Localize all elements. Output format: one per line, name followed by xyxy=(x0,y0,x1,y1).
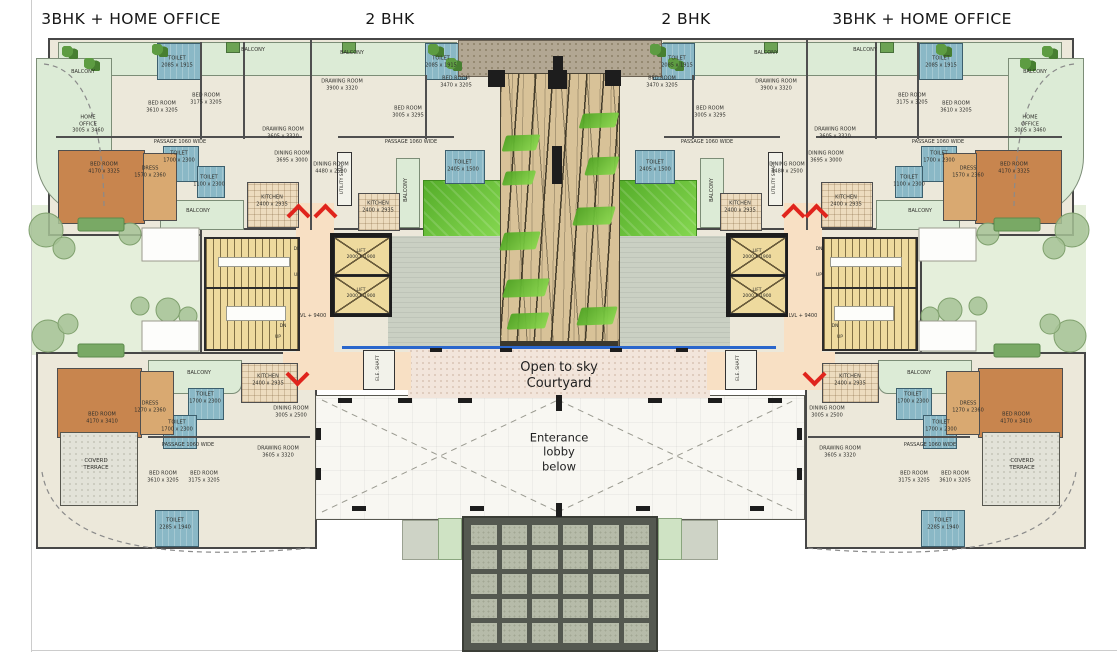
room-label: DN xyxy=(816,247,823,253)
room-label: TOILET 2285 x 1940 xyxy=(159,518,191,531)
deck-grass-patch xyxy=(501,134,540,151)
paving-right xyxy=(618,236,730,348)
courtyard-label: Open to sky Courtyard xyxy=(520,360,598,393)
canopy-tile xyxy=(563,550,589,570)
courtyard-lawn-right xyxy=(618,180,697,240)
stair-right-lower-landing xyxy=(834,306,894,321)
room-label: PASSAGE 1060 WIDE xyxy=(385,139,437,146)
room-label: BED ROOM 4170 x 3325 xyxy=(88,162,120,175)
room-label: KITCHEN 2400 x 2935 xyxy=(834,374,866,387)
room-label: BALCONY xyxy=(907,370,931,377)
room-label: BED ROOM 3175 x 3205 xyxy=(190,93,222,106)
room-label: BALCONY xyxy=(853,47,877,54)
room-label: COVERD TERRACE xyxy=(83,458,108,472)
paving-left xyxy=(388,236,500,348)
canopy-tile xyxy=(563,623,589,643)
room-label: BED ROOM 3470 x 3205 xyxy=(646,76,678,89)
room-label: TOILET 2085 x 1915 xyxy=(661,56,693,69)
floor-plan-canvas: 3BHK + HOME OFFICE 2 BHK 2 BHK 3BHK + HO… xyxy=(0,0,1118,658)
room-label: HOME OFFICE 3005 x 3460 xyxy=(1014,114,1046,134)
room-label: KITCHEN 2400 x 2935 xyxy=(256,195,288,208)
room-label: DRAWING ROOM 3900 x 3320 xyxy=(755,79,797,92)
room-label: LIFT 2000 X 1900 xyxy=(743,249,772,261)
deck-grass-patch xyxy=(579,112,620,128)
room-label: HOME OFFICE 3005 x 3460 xyxy=(72,114,104,134)
room-label: DRESS 1270 x 2360 xyxy=(134,401,166,414)
canopy-tile xyxy=(502,623,528,643)
room-label: DRESS 1270 x 2360 xyxy=(952,401,984,414)
room-label: PASSAGE 1060 WIDE xyxy=(154,139,206,146)
entrance-green-right xyxy=(658,518,682,560)
unit-type-label-left: 3BHK + HOME OFFICE xyxy=(41,10,221,28)
room-label: ELE. SHAFT xyxy=(736,355,742,381)
room-label: TOILET 1100 x 2300 xyxy=(893,175,925,188)
canopy-tile xyxy=(593,525,619,545)
deck-grass-patch xyxy=(576,306,618,325)
wall-line xyxy=(338,136,454,138)
canopy-tile xyxy=(471,574,497,594)
room-label: BED ROOM 3610 x 3205 xyxy=(146,101,178,114)
room-label: LVL + 9400 xyxy=(298,313,327,320)
plant-icon xyxy=(62,46,78,59)
room-label: TOILET 2085 x 1915 xyxy=(925,56,957,69)
entrance-tile-canopy xyxy=(462,516,658,652)
room-label: BED ROOM 3005 x 3295 xyxy=(694,106,726,119)
wall-line xyxy=(875,42,877,139)
unit-type-label-2bhk-right: 2 BHK xyxy=(661,10,710,28)
room-label: TOILET 1700 x 2300 xyxy=(189,392,221,405)
room-label: BED ROOM 3610 x 3205 xyxy=(939,471,971,484)
canopy-tile xyxy=(563,525,589,545)
planter-box xyxy=(880,42,894,53)
room-label: BALCONY xyxy=(754,50,778,57)
canopy-tile xyxy=(471,525,497,545)
room-label: BED ROOM 4170 x 3325 xyxy=(998,162,1030,175)
wall-line xyxy=(243,42,245,139)
room-label: BED ROOM 3005 x 3295 xyxy=(392,106,424,119)
room-label: COVERD TERRACE xyxy=(1009,458,1034,472)
room-label: LIFT 2000 X 1900 xyxy=(743,288,772,300)
room-label: LIFT 2000 X 1900 xyxy=(347,249,376,261)
canopy-tile xyxy=(532,623,558,643)
canopy-tile xyxy=(563,574,589,594)
wall-line xyxy=(808,436,970,438)
room-label: BED ROOM 3470 x 3205 xyxy=(440,76,472,89)
room-label: DN xyxy=(832,324,839,330)
canopy-tile xyxy=(502,574,528,594)
canopy-tile xyxy=(563,599,589,619)
room-label: TOILET 2405 x 1500 xyxy=(447,160,479,173)
room-label: BALCONY xyxy=(908,208,932,215)
room-label: DINING ROOM 3005 x 2500 xyxy=(273,406,308,419)
room-label: BED ROOM 3175 x 3205 xyxy=(898,471,930,484)
room-label: TOILET 2405 x 1500 xyxy=(639,160,671,173)
room-label: BALCONY xyxy=(71,69,95,76)
deck-grass-patch xyxy=(502,278,550,297)
stair-left-lower-landing xyxy=(226,306,286,321)
wall-line xyxy=(806,40,808,230)
room-label: BALCONY xyxy=(187,370,211,377)
canopy-tile xyxy=(624,599,650,619)
courtyard-deck xyxy=(500,73,620,349)
canopy-tile xyxy=(502,599,528,619)
room-label: BED ROOM 3175 x 3205 xyxy=(896,93,928,106)
canopy-tile xyxy=(624,574,650,594)
master-bedroom-bottom-right xyxy=(978,368,1063,438)
plant-icon xyxy=(1042,46,1058,59)
room-label: UP xyxy=(837,335,843,341)
room-label: UP xyxy=(816,273,822,279)
room-label: LIFT 2000 X 1900 xyxy=(347,288,376,300)
room-label: DINING ROOM 3005 x 2500 xyxy=(809,406,844,419)
canopy-tile xyxy=(471,550,497,570)
room-label: KITCHEN 2400 x 2935 xyxy=(362,201,394,214)
room-label: BED ROOM 3175 x 3205 xyxy=(188,471,220,484)
wall-line xyxy=(664,136,780,138)
canopy-tile xyxy=(502,525,528,545)
room-label: BALCONY xyxy=(403,178,410,202)
entrance-green-left xyxy=(438,518,462,560)
room-label: DN xyxy=(294,247,301,253)
canopy-tile xyxy=(502,550,528,570)
stair-right-upper-landing xyxy=(830,257,902,267)
room-label: BED ROOM 3610 x 3205 xyxy=(147,471,179,484)
room-label: DRESS 1570 x 2360 xyxy=(134,166,166,179)
room-label: BALCONY xyxy=(709,178,716,202)
room-label: ELE. SHAFT xyxy=(376,355,382,381)
room-label: TOILET 1700 x 2300 xyxy=(923,151,955,164)
canopy-tile xyxy=(624,623,650,643)
room-label: PASSAGE 1060 WIDE xyxy=(904,442,956,449)
deck-grass-patch xyxy=(572,206,616,225)
wall-line xyxy=(917,42,919,139)
room-label: BED ROOM 4170 x 3410 xyxy=(86,412,118,425)
room-label: TOILET 1700 x 2300 xyxy=(897,392,929,405)
canopy-tile xyxy=(532,574,558,594)
room-label: DRAWING ROOM 3605 x 3320 xyxy=(814,127,856,140)
room-label: DRAWING ROOM 3900 x 3320 xyxy=(321,79,363,92)
wall-line xyxy=(200,42,202,139)
room-label: BALCONY xyxy=(186,208,210,215)
room-label: PASSAGE 1060 WIDE xyxy=(681,139,733,146)
canopy-tile xyxy=(471,623,497,643)
room-label: BALCONY xyxy=(1023,69,1047,76)
room-label: BED ROOM 3610 x 3205 xyxy=(940,101,972,114)
room-label: TOILET 1700 x 2300 xyxy=(925,420,957,433)
canopy-tile xyxy=(532,599,558,619)
courtyard-blue-edge xyxy=(342,346,776,349)
central-top-band xyxy=(458,40,662,77)
wall-line xyxy=(310,40,312,230)
wall-line xyxy=(425,75,427,139)
room-label: PASSAGE 1060 WIDE xyxy=(162,442,214,449)
room-label: DINING ROOM 3695 x 3000 xyxy=(808,151,843,164)
canopy-tile xyxy=(471,599,497,619)
canopy-tile xyxy=(532,525,558,545)
canopy-tile xyxy=(593,574,619,594)
deck-grass-patch xyxy=(502,170,536,185)
room-label: UP xyxy=(294,273,300,279)
lobby-label: Enterance lobby below xyxy=(530,430,589,473)
canopy-tile xyxy=(593,599,619,619)
canopy-tile xyxy=(532,550,558,570)
room-label: UP xyxy=(275,335,281,341)
planter-box xyxy=(226,42,240,53)
room-label: LVL + 9400 xyxy=(789,313,818,320)
room-label: KITCHEN 2400 x 2935 xyxy=(830,195,862,208)
deck-grass-patch xyxy=(506,312,549,329)
room-label: TOILET 2285 x 1940 xyxy=(927,518,959,531)
room-label: PASSAGE 1060 WIDE xyxy=(912,139,964,146)
room-label: DINING ROOM 4480 x 2500 xyxy=(313,162,348,175)
courtyard-lawn-left xyxy=(423,180,502,240)
room-label: TOILET 1700 x 2300 xyxy=(161,420,193,433)
master-bedroom-bottom-left xyxy=(57,368,142,438)
canopy-tile xyxy=(624,525,650,545)
room-label: BALCONY xyxy=(241,47,265,54)
unit-type-label-2bhk-left: 2 BHK xyxy=(365,10,414,28)
wall-line xyxy=(148,436,310,438)
canopy-tile xyxy=(624,550,650,570)
room-label: DRAWING ROOM 3605 x 3320 xyxy=(262,127,304,140)
room-label: KITCHEN 2400 x 2935 xyxy=(252,374,284,387)
room-label: TOILET 2085 x 1915 xyxy=(161,56,193,69)
room-label: TOILET 2085 x 1915 xyxy=(425,56,457,69)
room-label: DINING ROOM 4480 x 2500 xyxy=(769,162,804,175)
stair-left-upper-landing xyxy=(218,257,290,267)
room-label: BED ROOM 4170 x 3410 xyxy=(1000,412,1032,425)
room-label: DN xyxy=(280,324,287,330)
room-label: DRAWING ROOM 3605 x 3320 xyxy=(819,446,861,459)
unit-type-label-right: 3BHK + HOME OFFICE xyxy=(832,10,1012,28)
room-label: DRAWING ROOM 3605 x 3320 xyxy=(257,446,299,459)
canopy-tile xyxy=(593,550,619,570)
room-label: BALCONY xyxy=(340,50,364,57)
room-label: DRESS 1570 x 2360 xyxy=(952,166,984,179)
room-label: TOILET 1100 x 2300 xyxy=(193,175,225,188)
room-label: TOILET 1700 x 2300 xyxy=(163,151,195,164)
canopy-tile xyxy=(593,623,619,643)
corridor-left-vertical xyxy=(296,203,334,353)
deck-grass-patch xyxy=(499,231,541,250)
deck-grass-patch xyxy=(584,156,620,175)
room-label: KITCHEN 2400 x 2935 xyxy=(724,201,756,214)
room-label: DINING ROOM 3695 x 3000 xyxy=(274,151,309,164)
